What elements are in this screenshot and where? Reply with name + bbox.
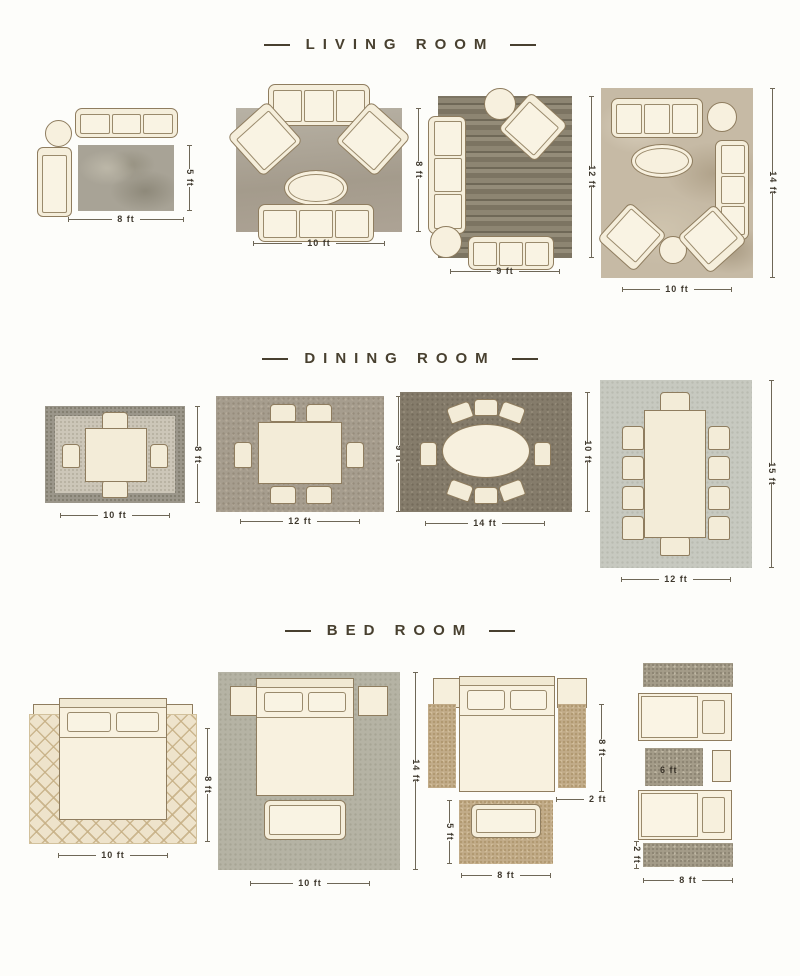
- bed-room-layout-4: 6 ft 2 ft 8 ft: [618, 655, 796, 893]
- nightstand-icon: [358, 686, 388, 716]
- dining-chair-icon: [622, 456, 644, 480]
- coffee-table-icon: [284, 170, 348, 206]
- bench-icon: [264, 800, 346, 840]
- runner-rug: [558, 704, 586, 788]
- width-dimension-label: 10 ft: [60, 510, 170, 520]
- twin-bed-icon: [638, 790, 732, 840]
- height-dimension-label: 14 ft: [404, 672, 428, 870]
- dining-chair-icon: [708, 486, 730, 510]
- dining-chair-icon: [474, 399, 498, 416]
- dining-chair-icon: [474, 487, 498, 504]
- width-dimension-label: 10 ft: [250, 878, 370, 888]
- height-dimension-label: 8 ft: [410, 108, 428, 232]
- runner-width-dimension-label: 2 ft: [556, 794, 610, 804]
- bed-icon: [256, 678, 354, 796]
- runner-height-dimension-label: 8 ft: [593, 704, 611, 792]
- dining-room-layout-1: 8 ft 10 ft: [42, 402, 197, 527]
- dining-chair-icon: [234, 442, 252, 468]
- living-room-layout-3: 12 ft 9 ft: [428, 88, 593, 280]
- nightstand-icon: [712, 750, 731, 782]
- foot-rug-width-dimension-label: 8 ft: [461, 870, 551, 880]
- dining-chair-icon: [150, 444, 168, 468]
- bed-room-title: BED ROOM: [327, 622, 474, 639]
- bed-icon: [459, 676, 555, 792]
- height-dimension-label: 15 ft: [760, 380, 784, 568]
- width-dimension-label: 8 ft: [643, 875, 733, 885]
- width-dimension-label: 9 ft: [450, 266, 560, 276]
- title-dash: [264, 44, 290, 46]
- dining-chair-icon: [346, 442, 364, 468]
- sofa-icon: [258, 204, 374, 242]
- dining-table-icon: [442, 424, 530, 478]
- twin-bed-icon: [638, 693, 732, 741]
- dining-chair-icon: [622, 426, 644, 450]
- runner-rug: [643, 663, 733, 687]
- living-room-title: LIVING ROOM: [306, 36, 495, 53]
- dining-chair-icon: [708, 516, 730, 540]
- sofa-icon: [468, 236, 554, 270]
- height-dimension-label: 14 ft: [761, 88, 785, 278]
- dining-chair-icon: [622, 516, 644, 540]
- width-dimension-label: 12 ft: [240, 516, 360, 526]
- chaise-chair-icon: [37, 147, 72, 217]
- dining-chair-icon: [62, 444, 80, 468]
- width-dimension-label: 14 ft: [425, 518, 545, 528]
- dining-chair-icon: [708, 426, 730, 450]
- bed-room-layout-2: 14 ft 10 ft: [214, 666, 412, 888]
- dining-chair-icon: [420, 442, 437, 466]
- bed-room-layout-3: 8 ft 2 ft 5 ft 8 ft: [425, 670, 607, 888]
- section-title-living: LIVING ROOM: [0, 36, 800, 53]
- dining-chair-icon: [708, 456, 730, 480]
- title-dash: [489, 630, 515, 632]
- sofa-icon: [428, 116, 466, 234]
- height-dimension-label: 8 ft: [189, 406, 207, 503]
- dining-table-icon: [85, 428, 147, 482]
- dining-room-layout-3: 10 ft 14 ft: [398, 390, 582, 532]
- living-room-layout-4: 14 ft 10 ft: [595, 80, 773, 292]
- runner-rug: [428, 704, 456, 788]
- title-dash: [285, 630, 311, 632]
- dining-chair-icon: [622, 486, 644, 510]
- dining-room-layout-4: 15 ft 12 ft: [598, 376, 773, 588]
- dining-room-title: DINING ROOM: [304, 350, 495, 367]
- dining-room-layout-2: 9 ft 12 ft: [212, 392, 396, 534]
- section-title-dining: DINING ROOM: [0, 350, 800, 367]
- width-dimension-label: 10 ft: [253, 238, 385, 248]
- bench-icon: [471, 804, 541, 838]
- side-table-icon: [430, 226, 462, 258]
- coffee-table-icon: [631, 144, 693, 178]
- side-table-icon: [45, 120, 72, 147]
- dining-chair-icon: [270, 404, 296, 422]
- title-dash: [512, 358, 538, 360]
- title-dash: [510, 44, 536, 46]
- title-dash: [262, 358, 288, 360]
- dining-chair-icon: [660, 536, 690, 556]
- sofa-icon: [75, 108, 178, 138]
- side-table-icon: [707, 102, 737, 132]
- width-dimension-label: 10 ft: [58, 850, 168, 860]
- dining-chair-icon: [102, 480, 128, 498]
- dining-table-icon: [644, 410, 706, 538]
- sofa-icon: [611, 98, 703, 138]
- dining-chair-icon: [534, 442, 551, 466]
- living-room-layout-1: 5 ft 8 ft: [28, 92, 203, 237]
- runner-width-dimension-label: 2 ft: [628, 841, 646, 869]
- height-dimension-label: 5 ft: [181, 145, 199, 211]
- runner-rug: [643, 843, 733, 867]
- width-dimension-label: 8 ft: [68, 214, 184, 224]
- rug-size-guide: LIVING ROOM 5 ft 8 ft 8 ft 10 ft: [0, 0, 800, 976]
- dining-chair-icon: [306, 486, 332, 504]
- foot-rug-height-dimension-label: 5 ft: [441, 800, 459, 864]
- width-dimension-label: 12 ft: [621, 574, 731, 584]
- section-title-bed: BED ROOM: [0, 622, 800, 639]
- between-rug-dimension-label: 6 ft: [660, 765, 678, 775]
- dining-chair-icon: [306, 404, 332, 422]
- bed-icon: [59, 698, 167, 820]
- bed-room-layout-1: 8 ft 10 ft: [25, 698, 207, 866]
- dining-chair-icon: [660, 392, 690, 412]
- height-dimension-label: 10 ft: [576, 392, 600, 512]
- dining-table-icon: [258, 422, 342, 484]
- dining-chair-icon: [270, 486, 296, 504]
- living-room-layout-2: 8 ft 10 ft: [228, 84, 423, 256]
- width-dimension-label: 10 ft: [622, 284, 732, 294]
- rug: [78, 145, 174, 211]
